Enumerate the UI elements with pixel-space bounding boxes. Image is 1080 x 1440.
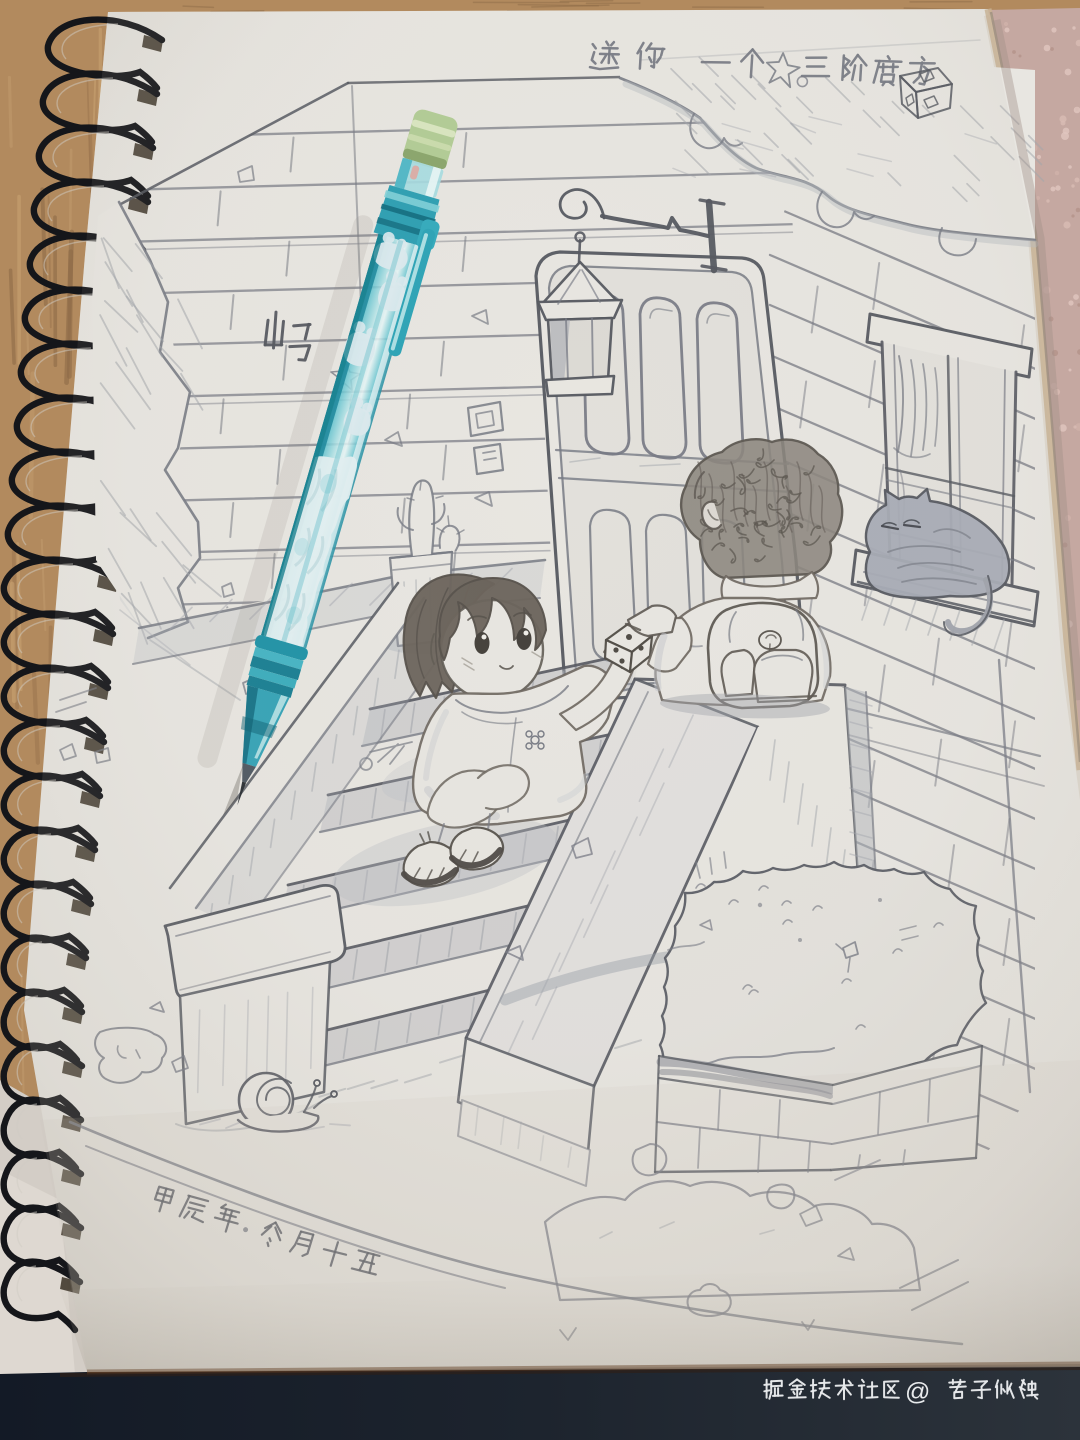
svg-text:@: @ bbox=[905, 1378, 930, 1406]
